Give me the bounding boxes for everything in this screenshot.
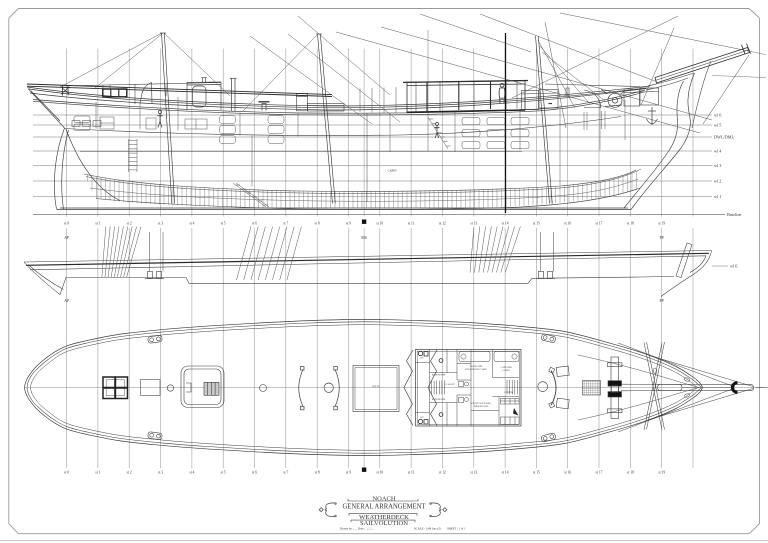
- svg-text:wl 6: wl 6: [730, 264, 737, 269]
- svg-text:WC: WC: [420, 357, 424, 360]
- svg-text:FP: FP: [660, 236, 665, 240]
- svg-text:st 10: st 10: [376, 222, 383, 226]
- svg-text:st 16: st 16: [564, 222, 571, 226]
- svg-text:st 11: st 11: [408, 222, 415, 226]
- svg-text:MESSROOM: MESSROOM: [474, 405, 488, 408]
- svg-text:st 9: st 9: [346, 471, 351, 475]
- svg-text:AP: AP: [64, 299, 70, 303]
- svg-text:st 6: st 6: [252, 471, 257, 475]
- svg-text:wl 1: wl 1: [714, 194, 721, 199]
- svg-text:wl 4: wl 4: [714, 148, 722, 153]
- svg-text:st 19: st 19: [658, 471, 665, 475]
- svg-text:wl 6: wl 6: [714, 112, 721, 117]
- svg-text:HATCH: HATCH: [372, 385, 381, 388]
- svg-text:st 3: st 3: [158, 471, 163, 475]
- svg-text:st 14: st 14: [502, 471, 509, 475]
- svg-text:st 18: st 18: [627, 222, 634, 226]
- svg-text:st 1: st 1: [95, 471, 100, 475]
- svg-text:wl 2: wl 2: [714, 178, 721, 183]
- svg-text:CABIN: CABIN: [502, 369, 510, 372]
- svg-text:SHEET : 1 of 1: SHEET : 1 of 1: [447, 527, 466, 531]
- svg-text:GALLEY: GALLEY: [445, 383, 455, 386]
- svg-text:Baseline: Baseline: [727, 212, 742, 217]
- svg-text:st 4: st 4: [189, 222, 194, 226]
- svg-text:st 7: st 7: [283, 471, 288, 475]
- svg-text:st 17: st 17: [596, 471, 603, 475]
- svg-text:SCALE : 1:86 (on a3): SCALE : 1:86 (on a3): [414, 527, 441, 531]
- svg-text:st 2: st 2: [127, 222, 132, 226]
- svg-text:DECKHAND CABIN: DECKHAND CABIN: [465, 368, 487, 371]
- svg-text:st 14: st 14: [502, 222, 509, 226]
- svg-text:FP: FP: [660, 299, 665, 303]
- svg-text:st 15: st 15: [533, 222, 540, 226]
- svg-text:st 12: st 12: [439, 222, 446, 226]
- svg-text:PANTRY: PANTRY: [504, 391, 513, 394]
- svg-text:GENERAL ARRANGEMENT: GENERAL ARRANGEMENT: [343, 503, 427, 511]
- svg-text:st 0: st 0: [64, 471, 69, 475]
- svg-text:AP: AP: [64, 236, 70, 240]
- svg-text:wl 3: wl 3: [714, 163, 721, 168]
- svg-text:st 2: st 2: [127, 471, 132, 475]
- svg-text:st 16: st 16: [564, 471, 571, 475]
- svg-text:st 10: st 10: [376, 471, 383, 475]
- svg-text:st 11: st 11: [408, 471, 415, 475]
- svg-text:st 8: st 8: [315, 222, 320, 226]
- svg-text:st 13: st 13: [470, 222, 477, 226]
- svg-text:st 5: st 5: [221, 471, 226, 475]
- svg-text:DWL/DML: DWL/DML: [714, 134, 734, 139]
- svg-text:st 6: st 6: [252, 222, 257, 226]
- svg-text:st 17: st 17: [596, 222, 603, 226]
- svg-text:st 7: st 7: [283, 222, 288, 226]
- svg-text:st 4: st 4: [189, 471, 194, 475]
- svg-text:st 8: st 8: [315, 471, 320, 475]
- svg-text:st 3: st 3: [158, 222, 163, 226]
- svg-text:Drawn by : .... Date : ../.: Drawn by : .... Date : ../../....: [340, 527, 374, 531]
- svg-text:st 15: st 15: [533, 471, 540, 475]
- svg-text:CABIN: CABIN: [388, 170, 397, 173]
- svg-text:st 9: st 9: [346, 222, 351, 226]
- svg-text:st 18: st 18: [627, 471, 634, 475]
- svg-text:wl 5: wl 5: [714, 122, 721, 127]
- svg-text:WC: WC: [420, 416, 424, 419]
- svg-text:st 12: st 12: [439, 471, 446, 475]
- svg-text:NOACH: NOACH: [373, 496, 397, 502]
- svg-text:st 19: st 19: [658, 222, 665, 226]
- svg-text:st 0: st 0: [64, 222, 69, 226]
- svg-text:st 1: st 1: [95, 222, 100, 226]
- svg-text:st 13: st 13: [470, 471, 477, 475]
- svg-text:st 5: st 5: [221, 222, 226, 226]
- svg-text:MS: MS: [361, 236, 367, 240]
